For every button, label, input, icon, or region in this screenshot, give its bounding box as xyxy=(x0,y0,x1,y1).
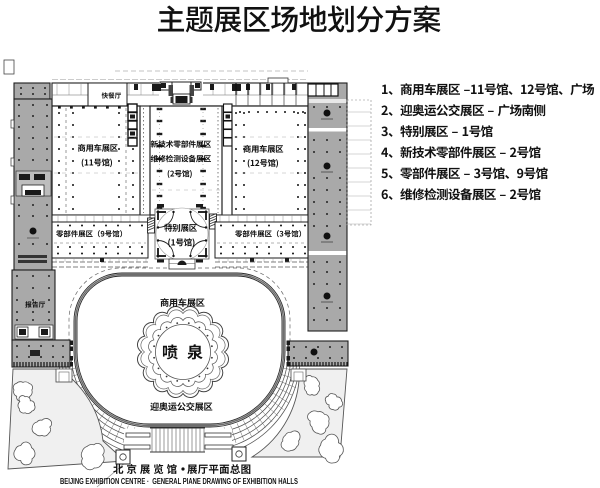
svg-text:BEIJING EXHIBITION CENTRE · G: BEIJING EXHIBITION CENTRE · GENERAL PIAN… xyxy=(60,477,298,486)
